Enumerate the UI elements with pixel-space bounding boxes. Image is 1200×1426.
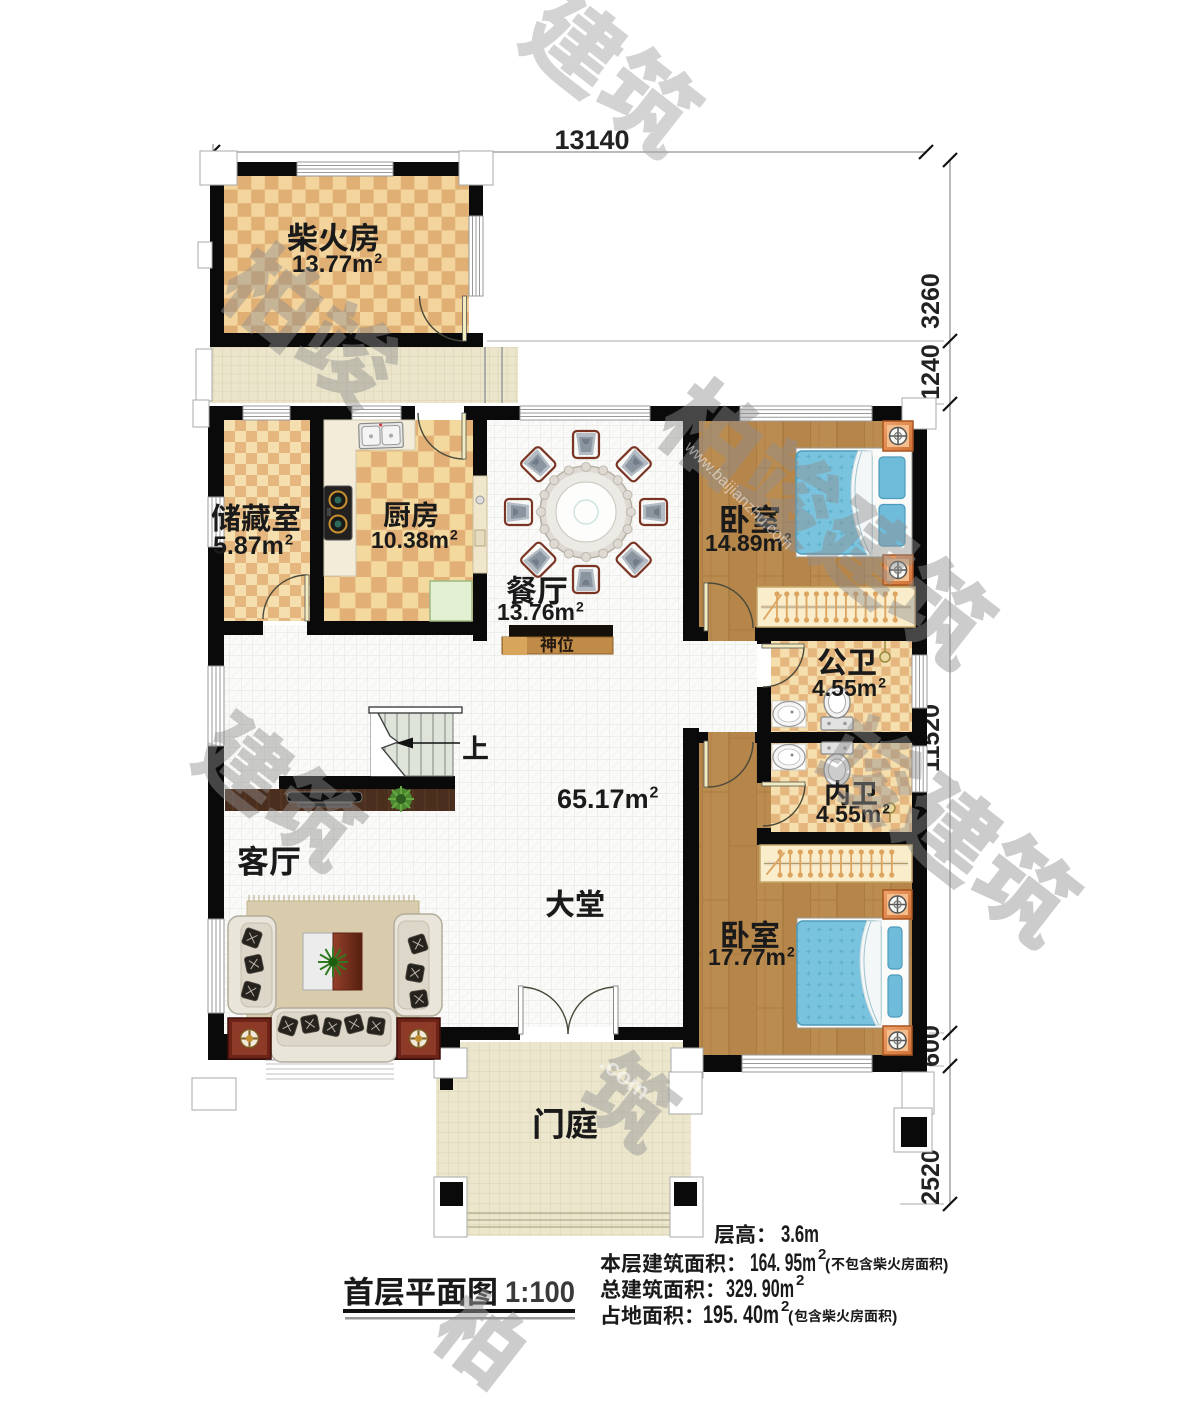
svg-text:2: 2	[878, 674, 886, 690]
svg-text:4.55m: 4.55m	[812, 675, 877, 701]
svg-text:): )	[892, 1309, 897, 1326]
svg-text:5.87m: 5.87m	[213, 532, 284, 560]
svg-text:2: 2	[450, 526, 458, 542]
svg-text:3260: 3260	[917, 273, 945, 329]
svg-text:(: (	[825, 1257, 831, 1274]
svg-text:2: 2	[374, 250, 382, 266]
svg-text:(: (	[788, 1309, 794, 1326]
svg-text:2: 2	[796, 1272, 804, 1289]
svg-text:1:100: 1:100	[505, 1276, 575, 1309]
svg-text:65.17m: 65.17m	[557, 784, 649, 814]
svg-text:164. 95m: 164. 95m	[750, 1249, 816, 1277]
svg-text:3.6m: 3.6m	[781, 1221, 819, 1248]
svg-text:): )	[943, 1257, 948, 1274]
svg-text:2: 2	[576, 598, 584, 614]
svg-text:2520: 2520	[917, 1149, 945, 1205]
svg-text:2: 2	[787, 943, 795, 959]
svg-text:1240: 1240	[917, 344, 945, 400]
svg-text:17.77m: 17.77m	[708, 944, 786, 970]
svg-text:195. 40m: 195. 40m	[703, 1301, 779, 1329]
svg-text:13.76m: 13.76m	[497, 599, 575, 625]
svg-text:10.38m: 10.38m	[371, 527, 449, 553]
svg-text:2: 2	[650, 785, 659, 802]
svg-text:2: 2	[285, 532, 293, 549]
